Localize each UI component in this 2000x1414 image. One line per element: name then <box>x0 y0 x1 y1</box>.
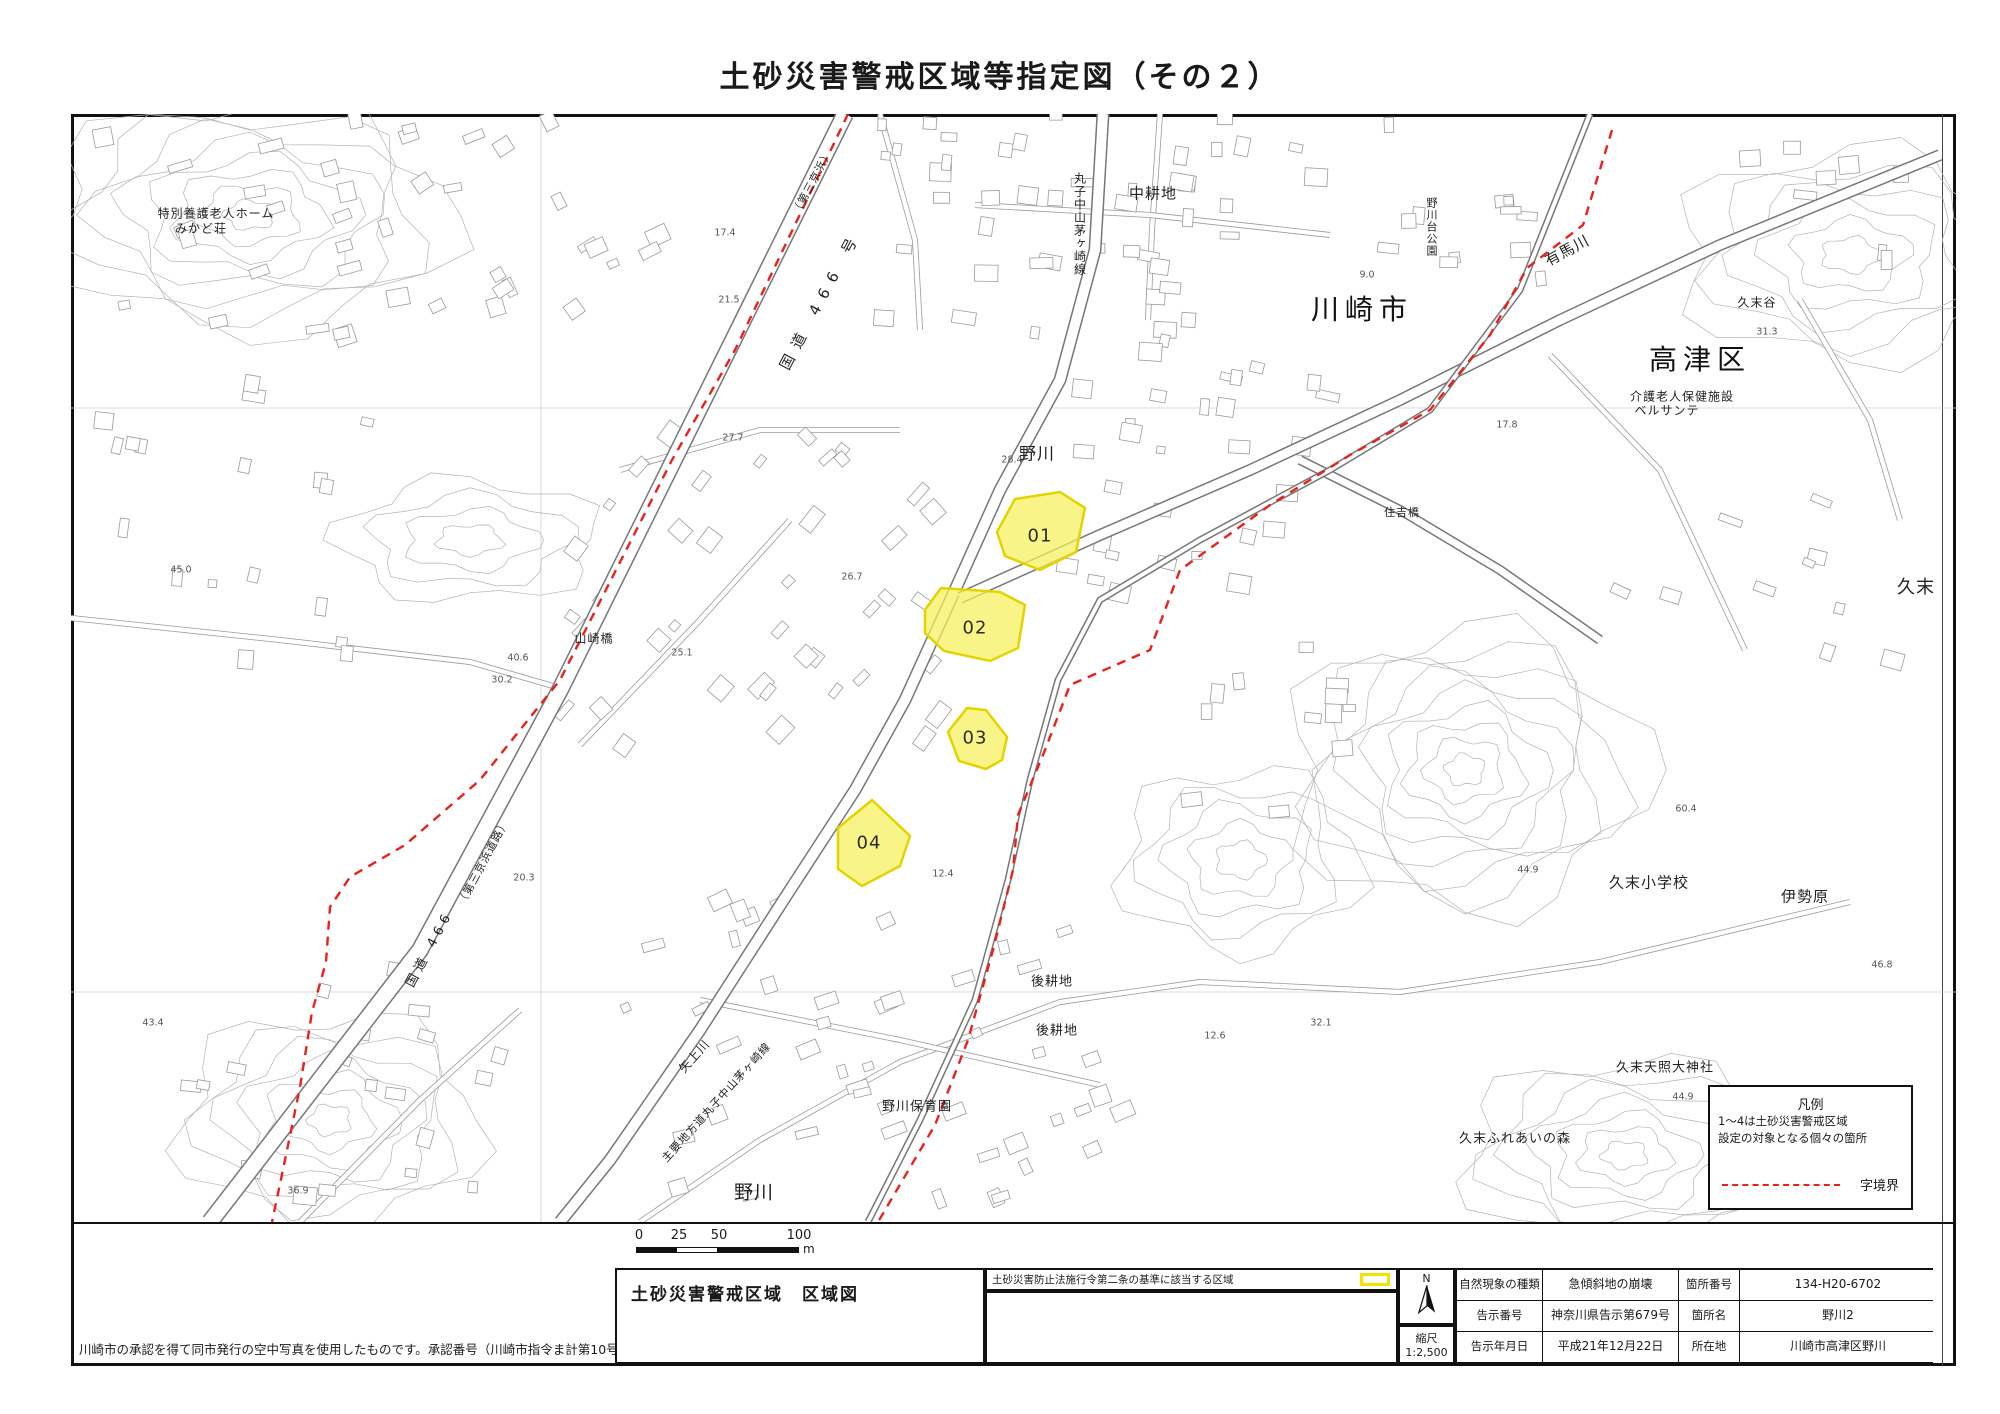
spot-elevation: 31.3 <box>1756 327 1777 338</box>
spot-elevation: 40.6 <box>507 653 528 664</box>
spot-elevation: 21.5 <box>718 295 739 306</box>
legal-criteria-row: 土砂災害防止法施行令第二条の基準に該当する区域 <box>985 1268 1398 1291</box>
scalebar-tick: 25 <box>671 1228 688 1243</box>
zone-label-04: 04 <box>857 833 882 854</box>
map-label-atokouchi-1: 後耕地 <box>1031 971 1073 990</box>
map-label-hisasuedani: 久末谷 <box>1737 294 1776 311</box>
map-label-nogawa-upper: 野川 <box>1019 440 1055 465</box>
spot-elevation: 12.4 <box>932 869 953 880</box>
map-label-nursery: 野川保育園 <box>882 1096 952 1115</box>
info-label-site-number: 箇所番号 <box>1679 1270 1739 1300</box>
map-title-box: 土砂災害警戒区域 区域図 <box>615 1268 985 1364</box>
info-value-site-name: 野川2 <box>1740 1301 1936 1331</box>
spot-elevation: 17.8 <box>1496 420 1517 431</box>
map-label-kaigo-2: ベルサンテ <box>1634 402 1699 419</box>
map-label-isehara: 伊勢原 <box>1781 886 1829 907</box>
map-label-nogawa-lower: 野川 <box>734 1178 774 1205</box>
legend-title: 凡例 <box>1710 1094 1911 1113</box>
spot-elevation: 9.0 <box>1359 270 1374 281</box>
footer-divider <box>71 1222 1956 1224</box>
spot-elevation: 43.4 <box>142 1018 163 1029</box>
boundary-line-sample <box>1722 1184 1840 1186</box>
empty-cell <box>985 1291 1398 1364</box>
map-label-fureai-forest: 久末ふれあいの森 <box>1459 1128 1571 1147</box>
north-label: N <box>1400 1274 1453 1284</box>
legend-line-1: 1～4は土砂災害警戒区域 <box>1718 1114 1903 1130</box>
map-title-text: 土砂災害警戒区域 区域図 <box>631 1280 983 1305</box>
page-title: 土砂災害警戒区域等指定図（その２） <box>0 52 2000 96</box>
map-label-carehome-2: みかど荘 <box>175 220 227 237</box>
info-value-notice-date: 平成21年12月22日 <box>1543 1332 1678 1362</box>
info-label-site-name: 箇所名 <box>1679 1301 1739 1331</box>
spot-elevation: 46.8 <box>1871 960 1892 971</box>
map-label-yamazakibashi: 山崎橋 <box>574 630 613 647</box>
spot-elevation: 12.6 <box>1204 1031 1225 1042</box>
scalebar-tick: 100 <box>787 1228 812 1243</box>
map-label-atokouchi-2: 後耕地 <box>1036 1020 1078 1039</box>
spot-elevation: 30.2 <box>491 675 512 686</box>
legend-boundary-label: 字境界 <box>1860 1175 1899 1194</box>
spot-elevation: 60.4 <box>1675 804 1696 815</box>
scalebar-graphic <box>636 1247 799 1253</box>
spot-elevation: 27.7 <box>722 433 743 444</box>
spot-elevation: 20.3 <box>513 873 534 884</box>
zone-label-02: 02 <box>963 618 988 639</box>
map-label-nakakouchi: 中耕地 <box>1129 183 1177 204</box>
north-arrow-cell: N <box>1398 1268 1455 1325</box>
legend-line-2: 設定の対象となる個々の箇所 <box>1718 1131 1903 1147</box>
footer-note: 川崎市の承認を得て同市発行の空中写真を使用したものです。承認番号（川崎市指令ま計… <box>79 1339 631 1358</box>
map-label-hisasue: 久末 <box>1897 573 1935 599</box>
info-label-notice-date: 告示年月日 <box>1457 1332 1542 1362</box>
info-label-notice-number: 告示番号 <box>1457 1301 1542 1331</box>
legal-criteria-label: 土砂災害防止法施行令第二条の基準に該当する区域 <box>992 1272 1360 1287</box>
scalebar-tick: 50 <box>711 1228 728 1243</box>
info-value-phenomenon: 急傾斜地の崩壊 <box>1543 1270 1678 1300</box>
scale-label: 縮尺 <box>1400 1330 1453 1346</box>
scale-value: 1:2,500 <box>1400 1346 1453 1359</box>
info-table: 自然現象の種類 急傾斜地の崩壊 箇所番号 134-H20-6702 告示番号 神… <box>1455 1268 1933 1364</box>
info-value-notice-number: 神奈川県告示第679号 <box>1543 1301 1678 1331</box>
spot-elevation: 32.1 <box>1310 1018 1331 1029</box>
info-value-site-number: 134-H20-6702 <box>1740 1270 1936 1300</box>
north-arrow-icon <box>1416 1284 1438 1314</box>
map-label-sumiyoshibashi: 住吉橋 <box>1384 504 1420 520</box>
info-label-location: 所在地 <box>1679 1332 1739 1362</box>
page: 土砂災害警戒区域等指定図（その２） 川崎市 高津区 久末 野川 野川 中耕地 後… <box>0 0 2000 1414</box>
info-label-phenomenon: 自然現象の種類 <box>1457 1270 1542 1300</box>
scale-cell: 縮尺 1:2,500 <box>1398 1325 1455 1364</box>
scalebar-tick: 0 <box>635 1228 643 1243</box>
legend-box: 凡例 1～4は土砂災害警戒区域 設定の対象となる個々の箇所 字境界 <box>1708 1085 1913 1210</box>
map-label-park: 野川台公園 <box>1423 197 1439 257</box>
spot-elevation: 26.7 <box>841 572 862 583</box>
spot-elevation: 45.0 <box>170 565 191 576</box>
map-label-maruko-road-vert: 丸子中山茅ヶ崎線 <box>1072 172 1089 276</box>
spot-elevation: 25.1 <box>671 648 692 659</box>
map-label-elementary-school: 久末小学校 <box>1609 872 1689 893</box>
scale-bar: 0 25 50 100 m <box>636 1228 836 1260</box>
info-value-location: 川崎市高津区野川 <box>1740 1332 1936 1362</box>
map-label-ward: 高津区 <box>1649 338 1751 378</box>
map-label-shrine: 久末天照大神社 <box>1616 1057 1714 1076</box>
spot-elevation: 36.9 <box>287 1186 308 1197</box>
zone-color-swatch <box>1360 1273 1390 1286</box>
zone-label-03: 03 <box>963 728 988 749</box>
spot-elevation: 44.9 <box>1517 865 1538 876</box>
zone-label-01: 01 <box>1028 526 1053 547</box>
scalebar-unit: m <box>803 1242 815 1256</box>
map-label-city: 川崎市 <box>1311 288 1413 328</box>
spot-elevation: 17.4 <box>714 228 735 239</box>
spot-elevation: 44.9 <box>1672 1092 1693 1103</box>
